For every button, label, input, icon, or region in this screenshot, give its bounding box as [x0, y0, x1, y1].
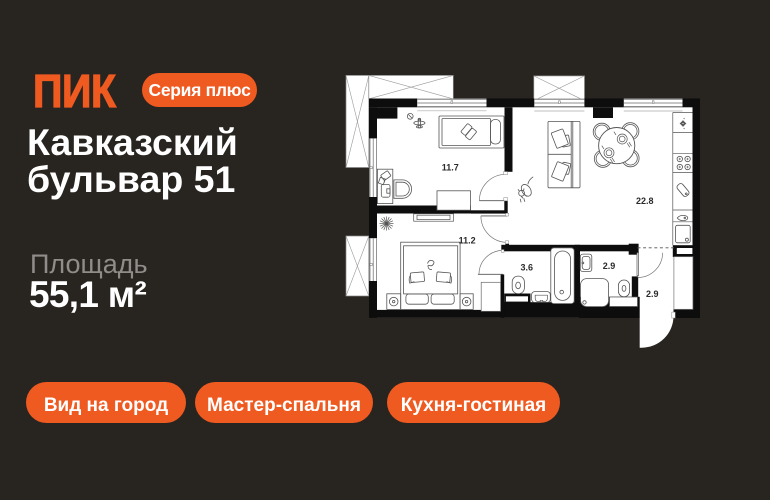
- svg-text:22.8: 22.8: [636, 196, 654, 206]
- svg-text:2.9: 2.9: [603, 261, 616, 271]
- svg-text:11.2: 11.2: [459, 235, 476, 245]
- svg-text:2.9: 2.9: [646, 289, 659, 299]
- svg-text:11.7: 11.7: [442, 163, 459, 173]
- svg-text:3.6: 3.6: [521, 262, 534, 272]
